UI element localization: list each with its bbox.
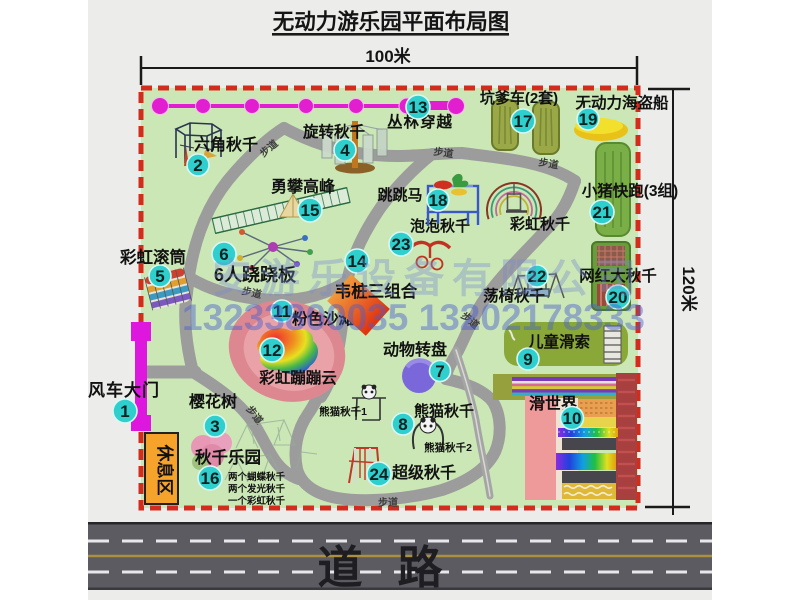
svg-text:3: 3	[210, 417, 219, 436]
svg-text:步道: 步道	[378, 496, 398, 509]
svg-text:熊猫秋千: 熊猫秋千	[414, 402, 474, 420]
svg-text:旋转秋千: 旋转秋千	[302, 122, 366, 141]
svg-text:4: 4	[340, 141, 350, 160]
svg-text:动物转盘: 动物转盘	[383, 340, 447, 359]
svg-text:彩虹滚筒: 彩虹滚筒	[119, 247, 186, 267]
svg-text:安游乐设备有限公司: 安游乐设备有限公司	[212, 257, 644, 301]
svg-text:两个蝴蝶秋千: 两个蝴蝶秋千	[228, 471, 286, 483]
svg-text:120米: 120米	[679, 266, 699, 312]
svg-text:18: 18	[429, 191, 448, 210]
svg-text:樱花树: 樱花树	[189, 392, 237, 411]
svg-text:坑爹车(2套): 坑爹车(2套)	[480, 89, 558, 107]
svg-text:10: 10	[563, 409, 582, 428]
svg-text:13: 13	[409, 98, 428, 117]
svg-text:8: 8	[398, 415, 407, 434]
svg-text:21: 21	[593, 203, 612, 222]
svg-text:小猪快跑(3组): 小猪快跑(3组)	[582, 181, 678, 200]
svg-text:2: 2	[193, 156, 202, 175]
svg-text:无动力游乐园平面布局图: 无动力游乐园平面布局图	[273, 9, 510, 34]
svg-text:超级秋千: 超级秋千	[391, 463, 456, 482]
svg-text:17: 17	[514, 112, 533, 131]
svg-text:16: 16	[201, 469, 220, 488]
svg-text:道: 道	[317, 542, 362, 593]
svg-text:100米: 100米	[365, 46, 411, 66]
svg-text:13233800035 13202178333: 13233800035 13202178333	[182, 297, 645, 338]
svg-text:熊猫秋千2: 熊猫秋千2	[424, 441, 472, 454]
svg-text:勇攀高峰: 勇攀高峰	[271, 177, 336, 196]
svg-text:秋千乐园: 秋千乐园	[195, 447, 261, 467]
svg-text:泡泡秋千: 泡泡秋千	[410, 217, 470, 235]
svg-text:5: 5	[155, 267, 164, 286]
svg-text:1: 1	[120, 402, 129, 421]
svg-text:7: 7	[435, 362, 444, 381]
svg-text:六角秋千: 六角秋千	[194, 135, 258, 154]
svg-text:休息区: 休息区	[155, 444, 175, 496]
svg-text:15: 15	[301, 201, 320, 220]
svg-text:23: 23	[392, 235, 411, 254]
svg-text:彩虹蹦蹦云: 彩虹蹦蹦云	[258, 368, 337, 387]
svg-text:12: 12	[263, 341, 282, 360]
svg-text:两个发光秋千: 两个发光秋千	[228, 483, 286, 495]
svg-text:19: 19	[579, 110, 598, 129]
svg-text:一个彩虹秋千: 一个彩虹秋千	[228, 495, 286, 507]
svg-text:跳跳马: 跳跳马	[377, 186, 422, 204]
svg-text:9: 9	[523, 350, 532, 369]
svg-text:路: 路	[397, 542, 443, 593]
svg-text:24: 24	[370, 465, 389, 484]
svg-text:彩虹秋千: 彩虹秋千	[509, 215, 570, 233]
svg-text:风车大门: 风车大门	[88, 380, 160, 400]
svg-text:熊猫秋千1: 熊猫秋千1	[319, 405, 367, 418]
